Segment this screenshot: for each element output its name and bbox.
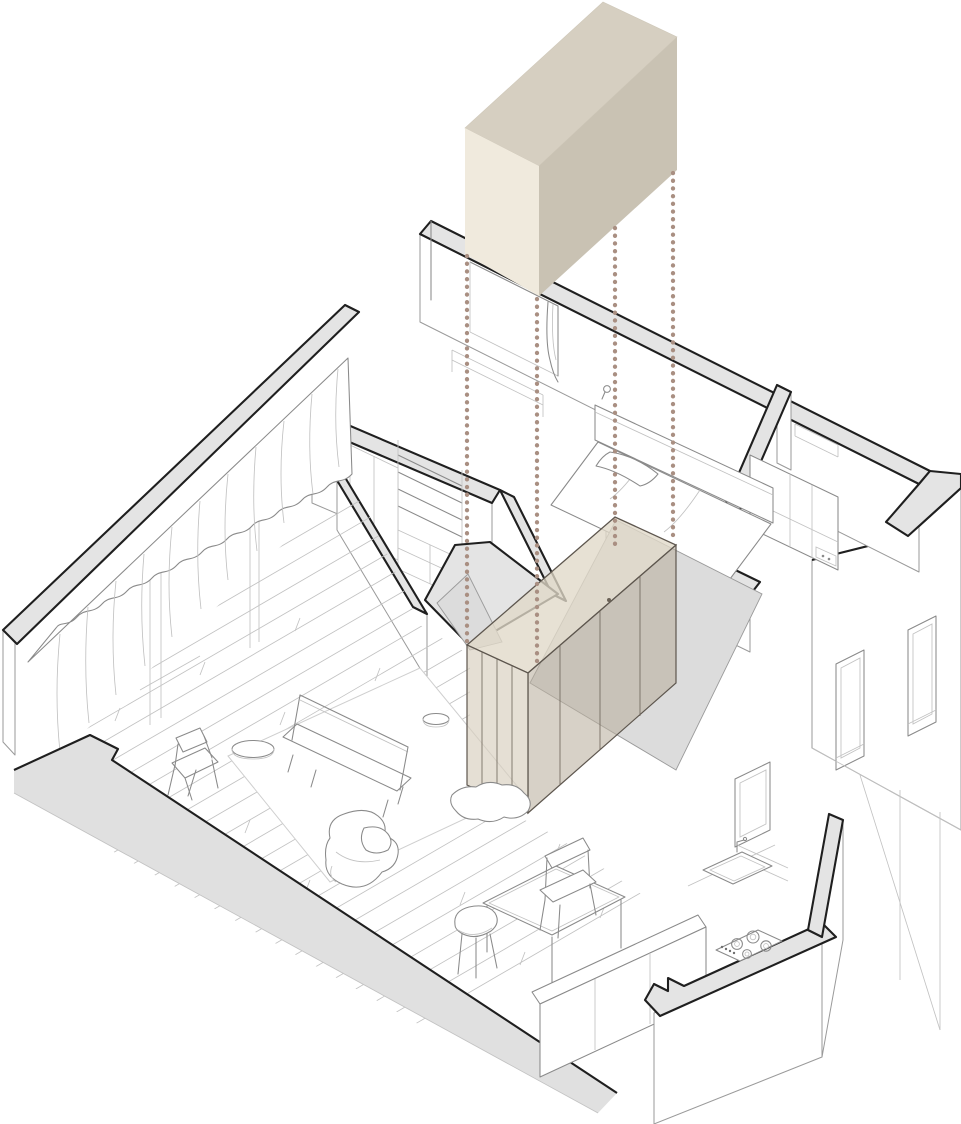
axonometric-apartment-diagram	[0, 0, 961, 1124]
wardrobe-knob	[607, 598, 611, 602]
dining-chair-round	[455, 906, 497, 978]
diagram-canvas	[0, 0, 961, 1124]
fabric-blob	[451, 782, 531, 821]
east-window-2	[908, 616, 936, 736]
stool	[423, 714, 449, 728]
living-window-wall	[3, 305, 359, 755]
kitchen-sink	[688, 837, 775, 886]
curtain	[28, 358, 352, 752]
east-window-1	[836, 650, 864, 770]
lounge-chair	[168, 728, 218, 800]
extracted-storage-volume	[465, 2, 677, 296]
